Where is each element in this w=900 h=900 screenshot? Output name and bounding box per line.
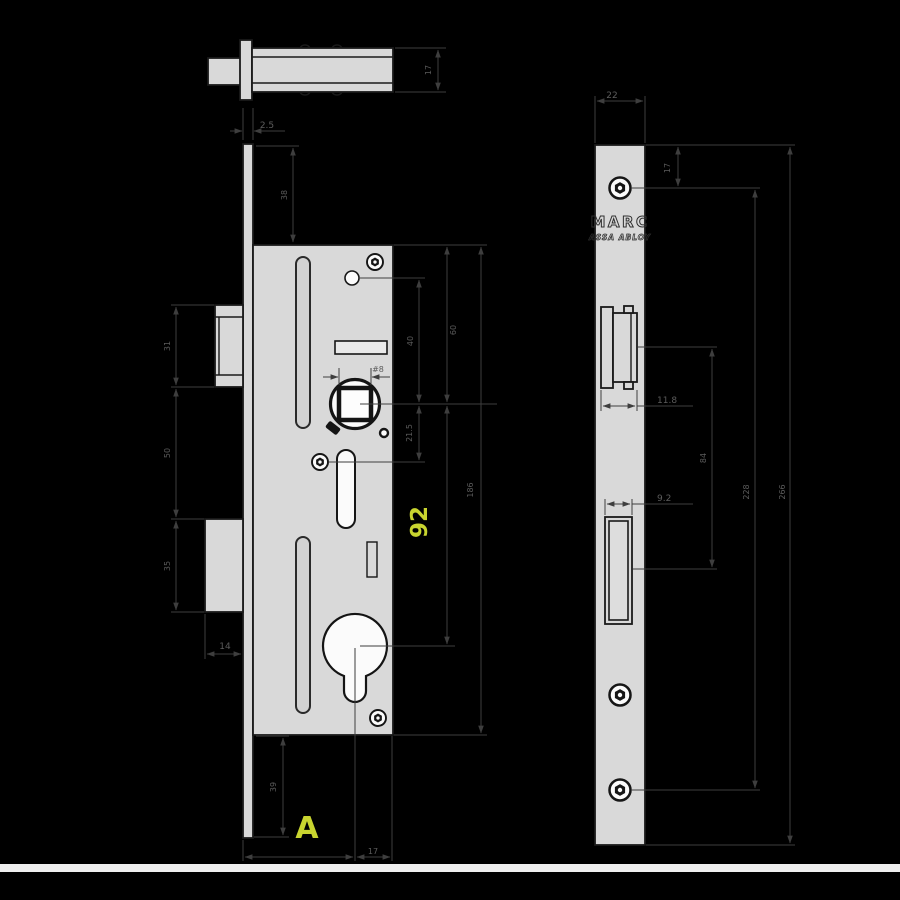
guide-slot-lower <box>296 537 310 713</box>
dim-plate-top-to-screw: 17 <box>663 163 672 173</box>
dim-cylinder-to-back: 17 <box>368 847 378 856</box>
faceplate-side <box>595 145 645 845</box>
latch-side <box>601 306 637 389</box>
bottom-white-strip <box>0 864 900 872</box>
dim-backset-A: A <box>295 811 319 846</box>
rect-slot <box>335 341 387 354</box>
dim-faceplate-thickness: 2.5 <box>260 121 274 131</box>
dim-case-height: 186 <box>466 482 475 497</box>
deadbolt-side <box>605 517 632 624</box>
dim-spindle-to-cylinder-92: 92 <box>407 506 433 538</box>
torx-screw-case-top <box>367 254 383 270</box>
dim-latch-bolt-gap: 50 <box>163 448 172 458</box>
dim-hole-to-spindle: 40 <box>406 336 415 346</box>
torx-screw-case-bottom <box>370 710 386 726</box>
fixing-hole-top <box>345 271 359 285</box>
dim-case-top-to-spindle: 60 <box>449 325 458 335</box>
latch-bolt-front <box>215 305 243 387</box>
technical-drawing: 17 <box>0 0 900 900</box>
dim-plate-length: 266 <box>778 484 787 499</box>
guide-slot-upper <box>296 257 310 428</box>
torx-screw-plate-lower <box>610 685 631 706</box>
dim-spindle-to-screw: 21.5 <box>405 424 414 442</box>
dim-topview-latch-height: 17 <box>424 65 433 75</box>
deadbolt-front <box>205 519 243 612</box>
torx-screw-case-mid <box>312 454 328 470</box>
dim-latch-projection: 11.8 <box>657 396 677 406</box>
dim-plate-width: 22 <box>606 91 617 101</box>
drawing-canvas: 17 <box>0 0 900 900</box>
dim-deadbolt-projection: 9.2 <box>657 494 671 504</box>
faceplate-front <box>243 144 253 838</box>
latch-stem <box>208 58 242 85</box>
latch-body-top <box>252 48 393 92</box>
dim-latch-to-bolt-centers: 84 <box>699 453 708 463</box>
brand-logo-marc: MARC <box>590 213 649 231</box>
dim-case-bottom-to-plate-end: 39 <box>269 782 278 792</box>
faceplate-flange-section <box>240 40 252 100</box>
brand-logo-assa-abloy: ASSA ABLOY <box>588 233 652 242</box>
dim-plate-top-to-case: 38 <box>280 190 289 200</box>
dim-deadbolt-throw: 14 <box>219 642 231 652</box>
background <box>0 0 900 900</box>
dim-screw-spacing: 228 <box>742 484 751 499</box>
pin-hole <box>380 429 388 437</box>
dim-latch-height: 31 <box>163 341 172 351</box>
torx-screw-plate-bottom <box>610 780 631 801</box>
torx-screw-plate-top <box>610 178 631 199</box>
dim-spindle-square: #8 <box>372 365 384 374</box>
dim-deadbolt-height: 35 <box>163 561 172 571</box>
